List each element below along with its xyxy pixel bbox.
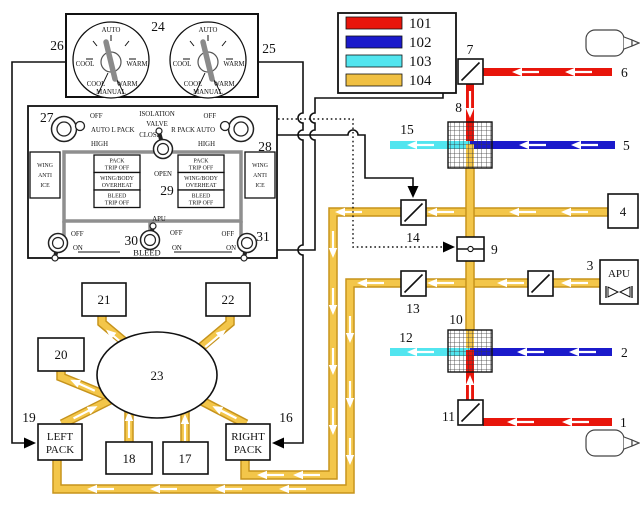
bleed-control-panel: OFF AUTO L PACK HIGH OFF R PACK AUTO HIG…: [28, 106, 277, 261]
manifold-23: 23: [151, 368, 164, 383]
callout-12: 12: [399, 330, 413, 345]
overheat-light: WING/BODY: [184, 176, 219, 182]
legend: 101 102 103 104: [338, 13, 456, 93]
knob-warm-label: WARM: [223, 61, 244, 68]
knob-cool-small: COOL: [184, 81, 203, 88]
annunciators-left: PACK TRIP OFF WING/BODY OVERHEAT BLEED T…: [94, 155, 140, 208]
temp-selector-panel: AUTO COOL WARM COOL WARM MANUAL AUTO COO…: [66, 14, 258, 98]
valve-13: [401, 271, 426, 296]
ground-cart-box: 4: [608, 194, 638, 228]
box-22: 22: [222, 292, 235, 307]
callout-24: 24: [151, 19, 165, 34]
callout-29: 29: [160, 183, 174, 198]
bleed-trip-light2: TRIP OFF: [189, 201, 214, 207]
apu-box-label: APU: [608, 268, 630, 280]
right-pack-box: RIGHT PACK: [226, 424, 270, 460]
pack-trip-light: PACK: [110, 159, 126, 165]
ice-label: ICE: [40, 183, 50, 189]
callout-27: 27: [40, 110, 54, 125]
callout-9: 9: [491, 242, 498, 257]
anti-label: ANTI: [38, 173, 52, 179]
knob-cool-label: COOL: [173, 61, 192, 68]
box-20: 20: [55, 347, 68, 362]
knob-warm-label: WARM: [126, 61, 147, 68]
isolation-valve-9: [457, 237, 484, 261]
l-pack-auto-label: AUTO L PACK: [91, 127, 135, 134]
overheat-light2: OVERHEAT: [102, 183, 133, 189]
r-pack-auto-label: R PACK AUTO: [171, 127, 215, 134]
callout-30: 30: [125, 233, 139, 248]
box-18: 18: [123, 451, 136, 466]
callout-5: 5: [623, 138, 630, 153]
engine-nozzle-icon-top: [586, 30, 639, 56]
apu-check-valve: [528, 271, 553, 296]
legend-label-103: 103: [409, 54, 432, 70]
right-bleed-off-label: OFF: [222, 231, 235, 238]
knob-manual-label: MANUAL: [193, 89, 223, 96]
knob-auto-label: AUTO: [102, 27, 121, 34]
pack-trip-light2: TRIP OFF: [189, 166, 214, 172]
legend-label-101: 101: [409, 16, 432, 32]
right-pack-label2: PACK: [234, 444, 262, 456]
legend-label-102: 102: [409, 35, 432, 51]
knob-auto-label: AUTO: [199, 27, 218, 34]
knob-cool-small: COOL: [87, 81, 106, 88]
apu-switch-label: APU: [152, 216, 166, 223]
callout-16: 16: [279, 410, 293, 425]
ice-label: ICE: [255, 183, 265, 189]
wing-label: WING: [37, 163, 53, 169]
overheat-light2: OVERHEAT: [186, 183, 217, 189]
wing-anti-ice-right: WING ANTI ICE: [245, 152, 275, 198]
knob-warm-small: WARM: [213, 81, 234, 88]
l-pack-off-label: OFF: [90, 113, 103, 120]
isolation-open-label: OPEN: [154, 171, 172, 178]
bleed-trip-light2: TRIP OFF: [105, 201, 130, 207]
pack-trip-light: PACK: [194, 159, 210, 165]
legend-swatch-101: [346, 17, 402, 29]
callout-28: 28: [258, 139, 272, 154]
callout-11: 11: [442, 409, 455, 424]
left-pack-box: LEFT PACK: [38, 424, 82, 460]
apu-off-label: OFF: [170, 230, 183, 237]
box-21: 21: [98, 292, 111, 307]
knob-cool-label: COOL: [76, 61, 95, 68]
bleed-trip-light: BLEED: [108, 194, 127, 200]
callout-3: 3: [587, 258, 594, 273]
overheat-light: WING/BODY: [100, 176, 135, 182]
callout-6: 6: [621, 65, 628, 80]
left-pack-label1: LEFT: [47, 431, 74, 443]
left-bleed-off-label: OFF: [71, 231, 84, 238]
callout-31: 31: [256, 229, 270, 244]
r-pack-high-label: HIGH: [198, 141, 215, 148]
pack-trip-light2: TRIP OFF: [105, 166, 130, 172]
valve-11: [458, 400, 483, 425]
knob-warm-small: WARM: [116, 81, 137, 88]
left-pack-label2: PACK: [46, 444, 74, 456]
callout-10: 10: [449, 312, 463, 327]
r-pack-off-label: OFF: [204, 113, 217, 120]
temp-knob-left: AUTO COOL WARM COOL WARM MANUAL: [73, 22, 149, 98]
box-17: 17: [179, 451, 193, 466]
right-pack-label1: RIGHT: [231, 431, 265, 443]
isolation-valve-label: VALVE: [146, 121, 168, 128]
apu-on-label: ON: [172, 245, 182, 252]
anti-label: ANTI: [253, 173, 267, 179]
legend-swatch-104: [346, 74, 402, 86]
callout-7: 7: [467, 42, 474, 57]
valve-14: [401, 200, 426, 225]
callout-25: 25: [262, 41, 276, 56]
wing-anti-ice-left: WING ANTI ICE: [30, 152, 60, 198]
isolation-label: ISOLATION: [139, 111, 175, 118]
wing-label: WING: [252, 163, 268, 169]
diagram-page: AUTO COOL WARM COOL WARM MANUAL AUTO COO…: [0, 0, 640, 512]
left-bleed-on-label: ON: [73, 245, 83, 252]
legend-label-104: 104: [409, 73, 432, 89]
callout-26: 26: [50, 38, 64, 53]
callout-15: 15: [400, 122, 414, 137]
bleed-section-label: BLEED: [133, 248, 160, 258]
knob-manual-label: MANUAL: [96, 89, 126, 96]
valve-7: [458, 59, 483, 84]
legend-swatch-103: [346, 55, 402, 67]
temp-knob-right: AUTO COOL WARM COOL WARM MANUAL: [170, 22, 246, 98]
callout-13: 13: [406, 301, 420, 316]
heat-exchanger-lower: [448, 330, 492, 372]
callout-14: 14: [406, 230, 420, 245]
legend-swatch-102: [346, 36, 402, 48]
callout-8: 8: [455, 100, 462, 115]
bleed-trip-light: BLEED: [192, 194, 211, 200]
annunciators-right: PACK TRIP OFF WING/BODY OVERHEAT BLEED T…: [178, 155, 224, 208]
callout-19: 19: [22, 410, 36, 425]
right-bleed-on-label: ON: [226, 245, 236, 252]
engine-nozzle-icon-bottom: [586, 430, 639, 456]
box-4: 4: [620, 204, 627, 219]
callout-2: 2: [621, 345, 628, 360]
apu-box: APU: [600, 260, 638, 304]
bleed-air-schematic: AUTO COOL WARM COOL WARM MANUAL AUTO COO…: [0, 0, 640, 512]
heat-exchanger-upper: [448, 122, 492, 168]
l-pack-high-label: HIGH: [91, 141, 108, 148]
callout-1: 1: [620, 415, 627, 430]
